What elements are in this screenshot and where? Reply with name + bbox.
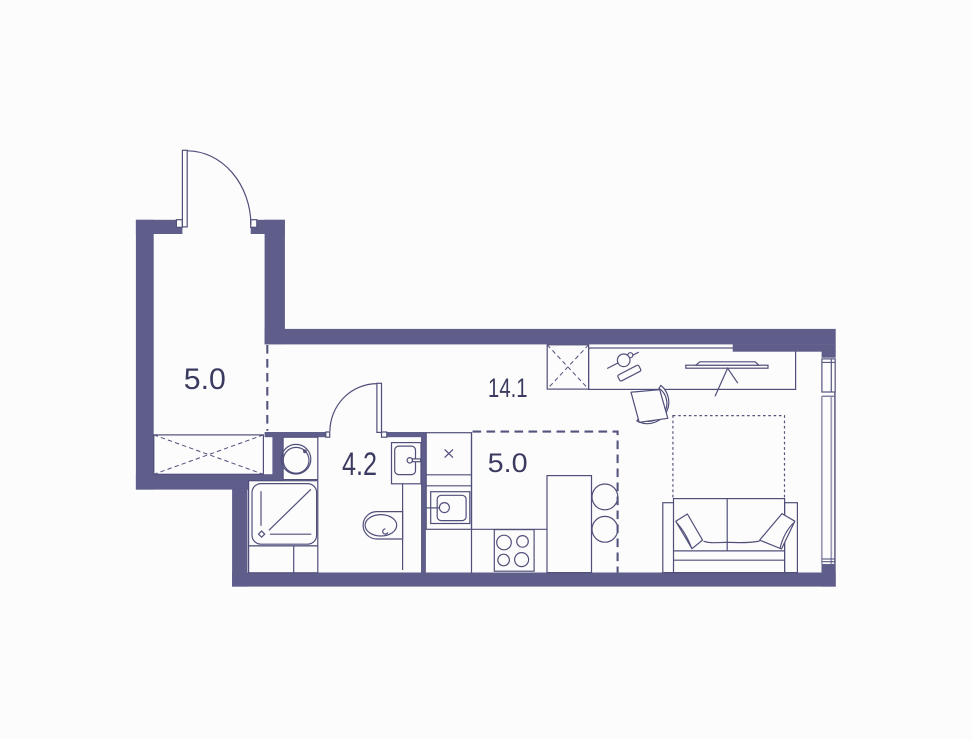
svg-text:5.0: 5.0 <box>488 448 528 478</box>
svg-text:14.1: 14.1 <box>488 373 528 403</box>
svg-text:4.2: 4.2 <box>342 446 377 482</box>
svg-text:5.0: 5.0 <box>184 363 226 396</box>
